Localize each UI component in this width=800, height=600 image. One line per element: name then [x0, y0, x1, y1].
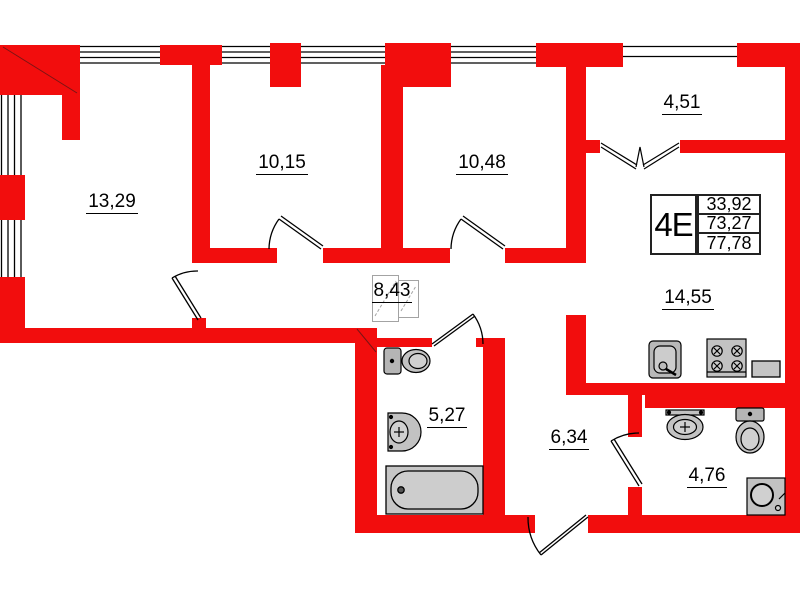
wall-right-external — [785, 43, 800, 533]
apartment-area-cell-3: 77,78 — [697, 232, 761, 255]
door-wc-4-76 — [611, 433, 642, 486]
bathtub-icon — [386, 466, 483, 514]
window-icon-top-1 — [80, 47, 160, 64]
wall-left-pier — [0, 175, 25, 220]
floor-plan: 13,29 10,15 10,48 4,51 8,43 14,55 5,27 6… — [0, 0, 800, 600]
wall-bathroom-top — [375, 338, 432, 347]
window-icon-balcony — [623, 47, 737, 57]
apartment-type-cell: 4E — [650, 194, 697, 255]
room-area-value: 4,76 — [687, 466, 728, 488]
room-area-value: 8,43 — [372, 281, 413, 303]
room-area-value: 4,51 — [662, 93, 703, 115]
apartment-area-cell-2: 73,27 — [697, 213, 761, 234]
apartment-type-value: 4E — [654, 206, 692, 244]
wall-kitchen-south-thick — [645, 383, 787, 408]
room-area-value: 5,27 — [427, 406, 468, 428]
kitchen-sink-icon — [649, 341, 681, 378]
room-area-value: 13,29 — [86, 192, 138, 214]
toilet-icon-bathroom — [384, 348, 430, 374]
room-area-label-corridor: 8,43 — [363, 281, 421, 303]
door-room-10-48 — [451, 216, 505, 249]
sink-icon-bathroom — [388, 413, 421, 451]
wall-balcony-pier — [583, 140, 600, 153]
room-area-value: 10,48 — [456, 153, 508, 175]
wall-hall-wc-divider-a — [628, 395, 642, 437]
wall-top-segment-2 — [160, 45, 222, 65]
room-area-label-hallway: 6,34 — [538, 428, 600, 450]
room-area-value: 6,34 — [549, 428, 590, 450]
apartment-area-value: 73,27 — [706, 213, 751, 234]
washing-machine-icon — [747, 478, 785, 515]
window-icon-top-3 — [301, 47, 385, 64]
room-area-label-balcony: 4,51 — [650, 93, 714, 115]
wall-room1-door-stub — [192, 318, 206, 330]
wall-bottom-a — [355, 515, 535, 533]
wall-corner-top-left — [0, 45, 80, 95]
window-icon-top-2 — [222, 47, 270, 64]
sink-icon-wc — [666, 410, 704, 440]
window-icon-left-2 — [2, 220, 22, 277]
wall-balcony-bottom — [680, 140, 785, 153]
room-area-label-wc: 4,76 — [679, 466, 735, 488]
room-area-label-kitchen: 14,55 — [652, 288, 724, 310]
wall-top-segment-3 — [270, 43, 301, 87]
wall-rooms-bottom-b — [323, 248, 450, 263]
room-area-label-3: 10,48 — [448, 153, 516, 175]
wall-bottom-b — [588, 515, 800, 533]
window-icon-left-1 — [2, 95, 22, 175]
stove-icon — [707, 339, 746, 377]
wall-rooms-bottom-c — [505, 248, 586, 263]
wall-southwest-external — [0, 328, 377, 343]
apartment-area-value: 77,78 — [706, 233, 751, 254]
room-area-label-1: 13,29 — [80, 192, 144, 214]
room-area-value: 10,15 — [256, 153, 308, 175]
wall-room2-room3-divider — [381, 65, 403, 263]
door-balcony-double — [601, 143, 679, 169]
wall-bathroom-left — [355, 328, 377, 533]
door-room-13-29 — [172, 271, 201, 320]
door-entrance — [528, 515, 588, 555]
window-icon-top-4 — [451, 47, 536, 64]
door-room-10-15 — [269, 216, 323, 249]
wall-room1-room2-divider — [192, 65, 210, 263]
apartment-area-cell-1: 33,92 — [697, 194, 761, 215]
room-area-label-bathroom: 5,27 — [419, 406, 475, 428]
room-area-label-2: 10,15 — [248, 153, 316, 175]
toilet-icon-wc — [736, 408, 764, 453]
room-area-value: 14,55 — [662, 288, 714, 310]
apartment-area-value: 33,92 — [706, 194, 751, 215]
wall-rooms-bottom-a — [192, 248, 277, 263]
kitchen-counter-icon — [752, 361, 780, 377]
wall-kitchen-south-thin — [566, 383, 656, 395]
wall-kitchen-west — [566, 315, 586, 385]
wall-bathroom-hall-divider — [483, 338, 505, 533]
wall-pillar-top-left — [62, 95, 80, 140]
wall-hall-wc-divider-b — [628, 487, 642, 517]
